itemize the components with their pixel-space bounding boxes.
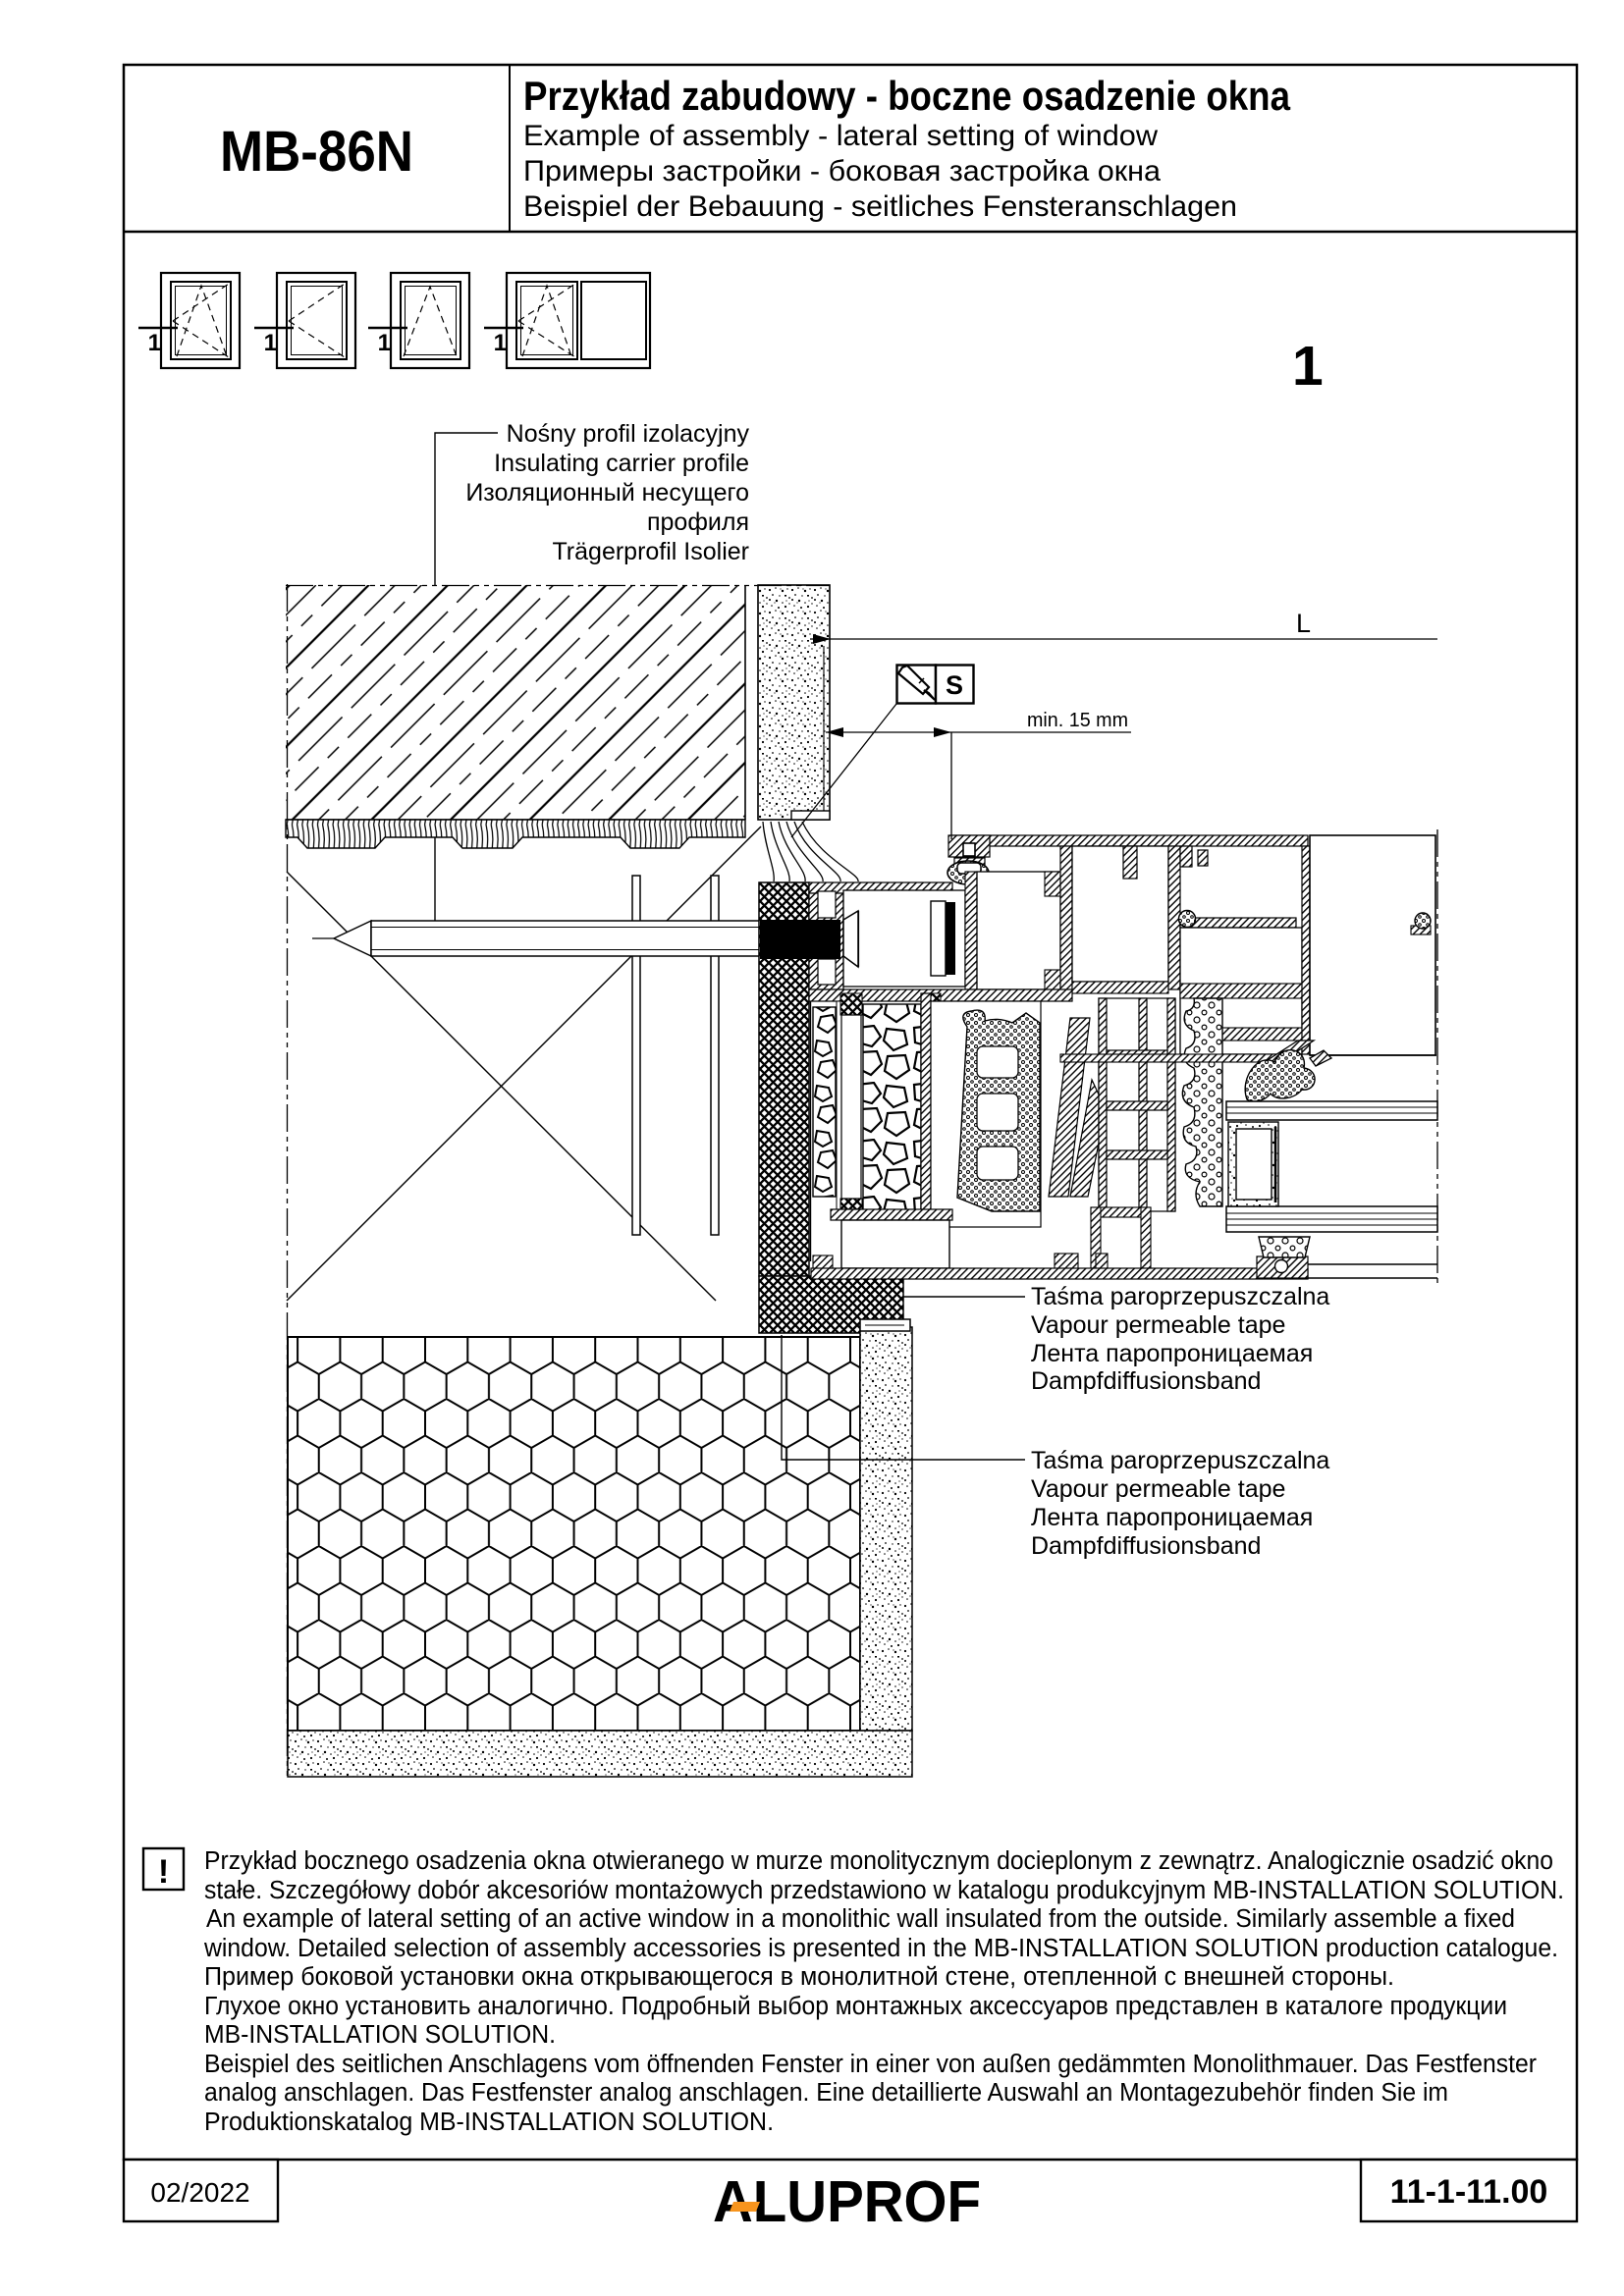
svg-text:window. Detailed selection of: window. Detailed selection of assembly a… [203, 1935, 1558, 1962]
svg-text:1: 1 [1292, 335, 1324, 398]
svg-text:Insulating carrier profile: Insulating carrier profile [494, 450, 749, 477]
svg-text:L: L [1296, 609, 1311, 638]
svg-text:Taśma paroprzepuszczalna: Taśma paroprzepuszczalna [1031, 1283, 1329, 1310]
svg-text:MB-86N: MB-86N [220, 120, 413, 184]
svg-text:MB-INSTALLATION SOLUTION.: MB-INSTALLATION SOLUTION. [204, 2021, 556, 2049]
svg-text:Example of assembly - lateral: Example of assembly - lateral setting of… [523, 120, 1158, 152]
svg-text:Dampfdiffusionsband: Dampfdiffusionsband [1031, 1532, 1261, 1560]
svg-text:Trägerprofil Isolier: Trägerprofil Isolier [552, 538, 749, 565]
svg-text:Лента паропроницаемая: Лента паропроницаемая [1031, 1504, 1313, 1531]
svg-text:Глухое окно установить аналоги: Глухое окно установить аналогично. Подро… [204, 1993, 1507, 2020]
svg-text:Taśma paroprzepuszczalna: Taśma paroprzepuszczalna [1031, 1447, 1329, 1474]
svg-text:Beispiel der Bebauung - seitli: Beispiel der Bebauung - seitliches Fenst… [523, 190, 1237, 223]
svg-text:1: 1 [148, 330, 161, 356]
svg-text:Лента паропроницаемая: Лента паропроницаемая [1031, 1340, 1313, 1367]
svg-text:Vapour permeable tape: Vapour permeable tape [1031, 1475, 1285, 1503]
svg-text:Dampfdiffusionsband: Dampfdiffusionsband [1031, 1367, 1261, 1395]
svg-text:S: S [946, 670, 963, 700]
svg-text:Vapour permeable tape: Vapour permeable tape [1031, 1311, 1285, 1339]
svg-text:Przykład bocznego osadzenia ok: Przykład bocznego osadzenia okna otwiera… [204, 1847, 1553, 1875]
svg-text:11-1-11.00: 11-1-11.00 [1390, 2173, 1548, 2211]
svg-text:профиля: профиля [647, 508, 749, 536]
svg-text:Nośny profil izolacyjny: Nośny profil izolacyjny [507, 420, 750, 448]
svg-text:!: ! [158, 1853, 169, 1891]
svg-text:1: 1 [264, 330, 277, 356]
svg-text:1: 1 [494, 330, 507, 356]
svg-text:1: 1 [378, 330, 391, 356]
svg-text:Изоляционный несущего: Изоляционный несущего [465, 479, 749, 507]
svg-text:An example of lateral setting: An example of lateral setting of an acti… [206, 1905, 1515, 1933]
svg-text:Пример боковой установки окна: Пример боковой установки окна открывающе… [204, 1963, 1394, 1991]
svg-text:Produktionskatalog MB-INSTALLA: Produktionskatalog MB-INSTALLATION SOLUT… [204, 2109, 774, 2136]
svg-text:02/2022: 02/2022 [150, 2177, 249, 2208]
svg-text:min. 15 mm: min. 15 mm [1027, 710, 1128, 731]
svg-text:stałe. Szczegółowy dobór akces: stałe. Szczegółowy dobór akcesoriów mont… [204, 1877, 1564, 1904]
svg-text:Примеры застройки - боковая за: Примеры застройки - боковая застройка ок… [523, 155, 1161, 187]
svg-text:Przykład zabudowy - boczne osa: Przykład zabudowy - boczne osadzenie okn… [523, 73, 1291, 119]
svg-text:analog anschlagen. Das Festfen: analog anschlagen. Das Festfenster analo… [204, 2079, 1448, 2107]
svg-text:Beispiel des seitlichen Anschl: Beispiel des seitlichen Anschlagens vom … [204, 2051, 1537, 2078]
